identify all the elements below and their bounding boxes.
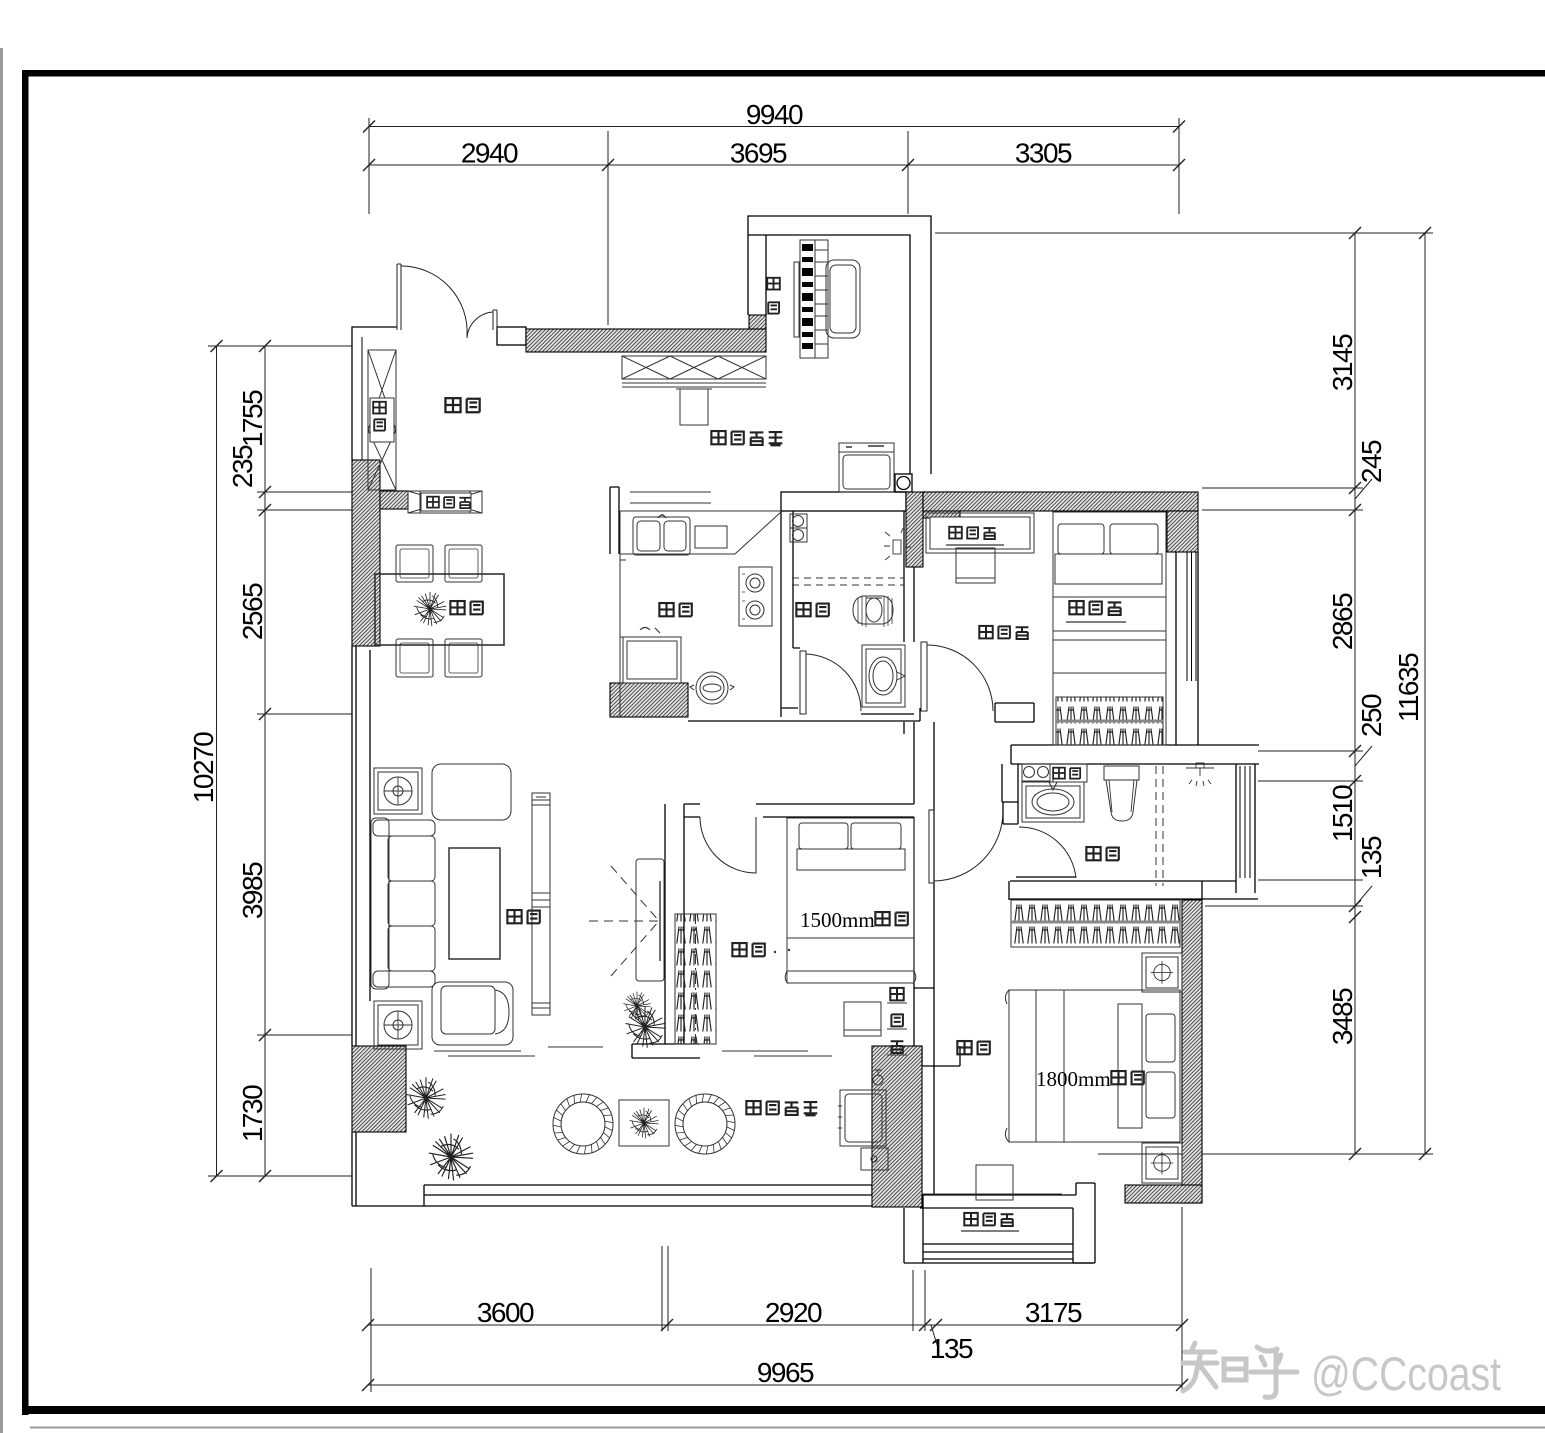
svg-text:9965: 9965 xyxy=(757,1357,814,1388)
svg-text:250: 250 xyxy=(1356,694,1387,737)
svg-text:2940: 2940 xyxy=(461,138,518,169)
svg-text:3485: 3485 xyxy=(1327,988,1358,1045)
svg-text:135: 135 xyxy=(1356,836,1387,879)
svg-text:245: 245 xyxy=(1356,440,1387,483)
svg-text:@CCcoast: @CCcoast xyxy=(1311,1347,1501,1400)
svg-text:3145: 3145 xyxy=(1327,334,1358,391)
svg-text:9940: 9940 xyxy=(746,99,803,130)
svg-text:135: 135 xyxy=(930,1333,973,1364)
svg-text:3600: 3600 xyxy=(477,1297,534,1328)
svg-text:10270: 10270 xyxy=(188,732,219,803)
svg-text:2865: 2865 xyxy=(1327,593,1358,650)
svg-text:1500mm: 1500mm xyxy=(800,908,875,932)
svg-text:3695: 3695 xyxy=(730,138,787,169)
svg-text:11635: 11635 xyxy=(1393,653,1424,722)
svg-text:1730: 1730 xyxy=(237,1085,268,1142)
svg-text:1755: 1755 xyxy=(237,390,268,447)
svg-text:3985: 3985 xyxy=(237,862,268,919)
svg-text:235: 235 xyxy=(227,445,258,488)
svg-text:1510: 1510 xyxy=(1327,785,1358,842)
svg-text:1800mm: 1800mm xyxy=(1036,1067,1111,1091)
svg-text:3175: 3175 xyxy=(1025,1297,1082,1328)
svg-text:2920: 2920 xyxy=(765,1297,822,1328)
svg-text:2565: 2565 xyxy=(237,583,268,640)
svg-text:3305: 3305 xyxy=(1015,138,1072,169)
